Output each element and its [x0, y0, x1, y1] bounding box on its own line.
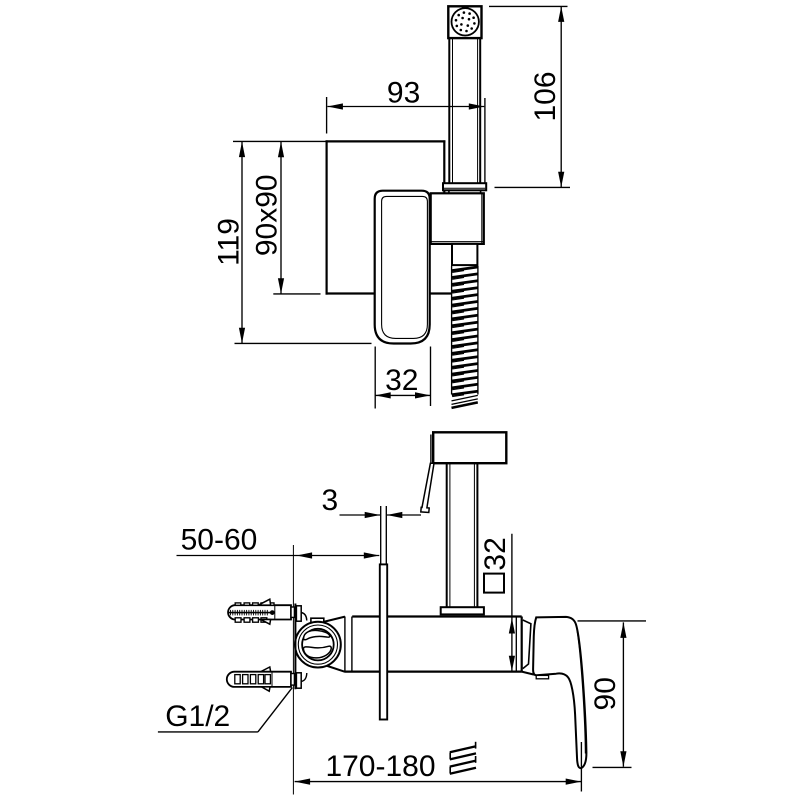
svg-text:3: 3 — [321, 484, 338, 517]
svg-text:32: 32 — [385, 364, 418, 397]
svg-text:93: 93 — [387, 76, 420, 109]
svg-text:90: 90 — [589, 677, 622, 710]
svg-text:50-60: 50-60 — [181, 523, 258, 556]
svg-text:32: 32 — [479, 537, 512, 570]
svg-text:106: 106 — [529, 71, 562, 121]
svg-text:119: 119 — [213, 218, 246, 266]
svg-text:170-180: 170-180 — [325, 750, 435, 783]
svg-text:90x90: 90x90 — [251, 174, 284, 256]
svg-text:G1/2: G1/2 — [165, 700, 230, 733]
